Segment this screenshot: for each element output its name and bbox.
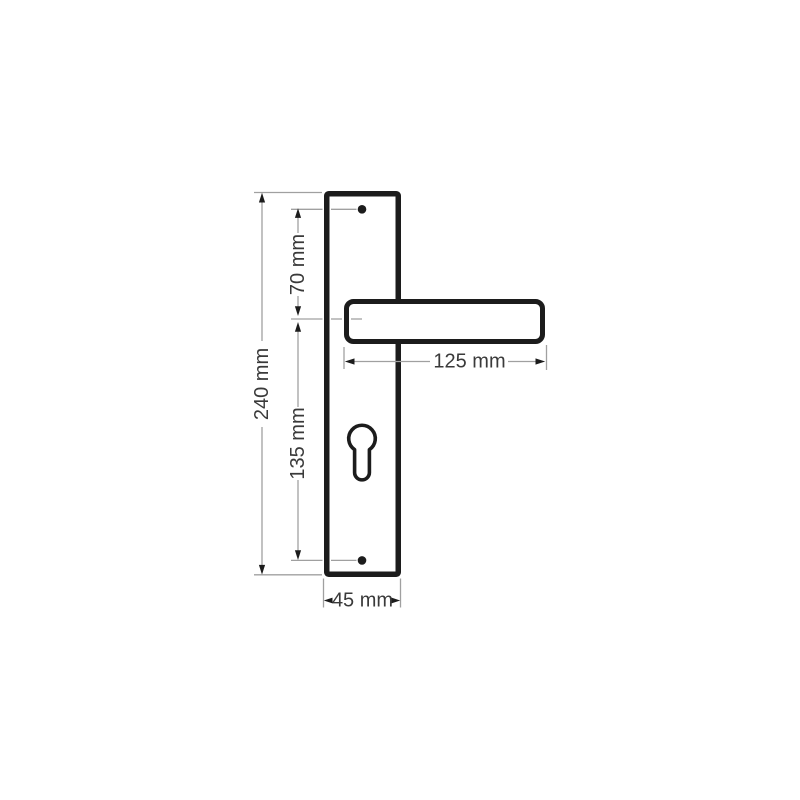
dimension-plate-width: 45 mm xyxy=(324,590,400,612)
arrowhead-down-icon xyxy=(295,550,301,560)
dimension-drawing: 240 mm 70 mm 135 mm 125 mm xyxy=(0,0,800,800)
handle-lever-outline xyxy=(347,302,543,342)
dimension-label-total-height: 240 mm xyxy=(251,348,273,420)
arrowhead-right-icon xyxy=(536,358,546,364)
screw-hole-top xyxy=(358,205,367,214)
dimension-label-plate-width: 45 mm xyxy=(332,590,393,612)
dimension-top-screw-to-handle: 70 mm xyxy=(287,208,309,316)
drawing-canvas: 240 mm 70 mm 135 mm 125 mm xyxy=(0,0,800,800)
arrowhead-up-icon xyxy=(259,193,265,203)
dimension-label-handle-to-bottom-screw: 135 mm xyxy=(287,407,309,479)
arrowhead-up-icon xyxy=(295,322,301,332)
dimension-label-top-screw-to-handle: 70 mm xyxy=(287,234,309,295)
screw-hole-bottom xyxy=(358,556,367,565)
arrowhead-down-icon xyxy=(259,565,265,575)
dimension-label-handle-length: 125 mm xyxy=(433,351,505,373)
handle-assembly xyxy=(327,194,543,575)
arrowhead-down-icon xyxy=(295,306,301,316)
backplate-outline xyxy=(327,194,399,575)
dimension-handle-to-bottom-screw: 135 mm xyxy=(287,322,309,560)
dimension-total-height: 240 mm xyxy=(251,193,273,575)
